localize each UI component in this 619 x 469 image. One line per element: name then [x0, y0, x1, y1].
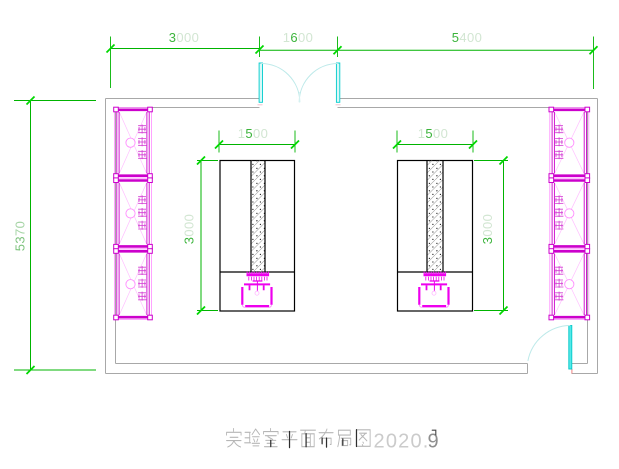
svg-text:1500: 1500 [418, 126, 449, 141]
svg-text:9: 9 [428, 431, 439, 453]
svg-text:3000: 3000 [182, 214, 197, 245]
svg-text:3000: 3000 [169, 30, 200, 45]
svg-text:3000: 3000 [480, 214, 495, 245]
svg-text:1500: 1500 [238, 126, 269, 141]
svg-text:1600: 1600 [283, 30, 314, 45]
svg-text:5370: 5370 [13, 221, 28, 252]
svg-text:5400: 5400 [452, 30, 483, 45]
svg-text:2020.: 2020. [374, 431, 430, 453]
